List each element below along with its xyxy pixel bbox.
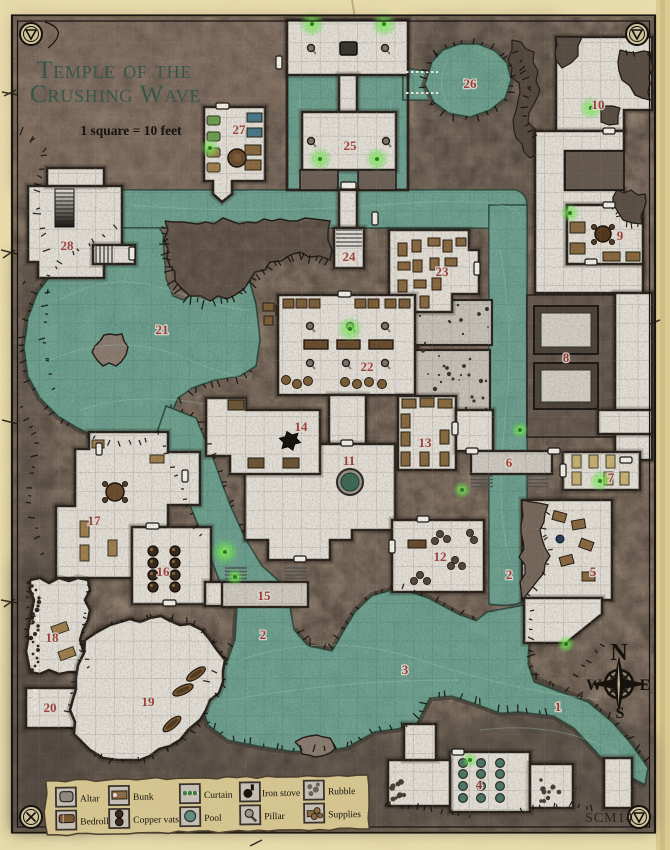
svg-text:Bedroll: Bedroll xyxy=(80,817,109,827)
svg-text:Pool: Pool xyxy=(204,814,222,824)
svg-text:N: N xyxy=(610,640,628,666)
svg-text:SCM14: SCM14 xyxy=(585,811,634,826)
svg-text:Curtain: Curtain xyxy=(204,791,233,801)
svg-text:Rubble: Rubble xyxy=(328,787,356,797)
svg-text:Altar: Altar xyxy=(80,794,100,804)
svg-text:Iron stove: Iron stove xyxy=(262,789,300,799)
svg-text:Bunk: Bunk xyxy=(133,793,154,803)
svg-text:E: E xyxy=(640,677,651,694)
svg-text:Supplies: Supplies xyxy=(328,810,361,820)
svg-text:S: S xyxy=(616,705,625,722)
svg-text:Pillar: Pillar xyxy=(264,812,286,822)
svg-text:W: W xyxy=(586,677,602,694)
svg-text:Copper vats: Copper vats xyxy=(133,815,179,826)
